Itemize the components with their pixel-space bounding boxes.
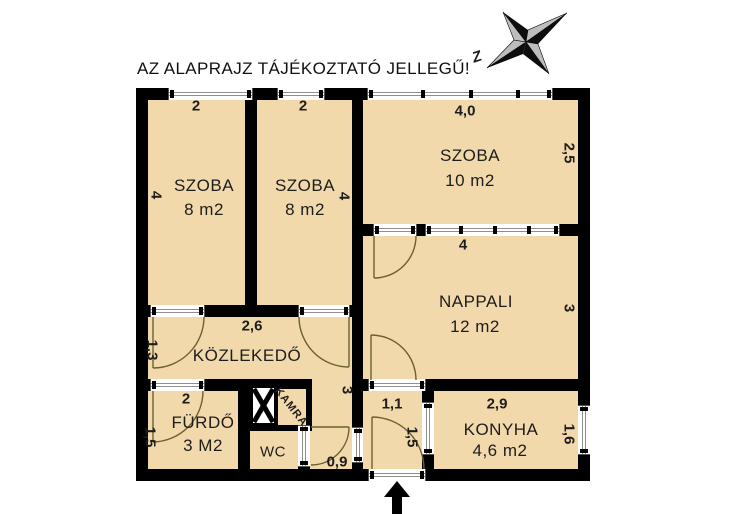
room-label-szoba1: SZOBA (174, 176, 234, 196)
room-label-szoba3: SZOBA (440, 146, 500, 166)
window-konyha (578, 405, 590, 455)
dim-nappali-right: 3 (561, 304, 578, 312)
door-opening-nappali (368, 379, 426, 391)
door-opening-furdo (150, 379, 205, 391)
door-opening-szoba2 (298, 305, 350, 317)
dim-szoba3-right: 2,5 (561, 143, 578, 164)
room-label-wc: WC (260, 444, 286, 461)
dim-nappali-top: 4 (459, 237, 467, 254)
wall-furdo-right (238, 379, 250, 469)
room-area-furdo: 3 M2 (183, 436, 223, 456)
window-szoba3 (367, 88, 553, 100)
room-area-konyha: 4,6 m2 (473, 441, 528, 461)
room-label-furdo: FÜRDŐ (172, 413, 235, 433)
wall-outer-bottom (136, 469, 590, 481)
wall-szoba1-szoba2 (245, 100, 257, 317)
room-label-nappali: NAPPALI (439, 292, 513, 312)
room-area-szoba3: 10 m2 (445, 171, 495, 191)
entrance-door-opening (368, 469, 426, 481)
opening-corridor-entry (352, 427, 363, 463)
dim-entry-width: 1,1 (382, 396, 403, 413)
window-mullion (527, 226, 531, 234)
window-mullion (493, 226, 497, 234)
room-area-nappali: 12 m2 (450, 317, 500, 337)
disclaimer-title: AZ ALAPRAJZ TÁJÉKOZTATÓ JELLEGŰ! (137, 59, 470, 79)
room-label-konyha: KONYHA (464, 420, 539, 440)
compass-north-label: Z (470, 47, 484, 66)
dim-hall-left: 1,3 (144, 340, 161, 361)
dim-hall-right: 3 (339, 386, 356, 394)
room-label-kozlekedo: KÖZLEKEDŐ (193, 346, 301, 366)
entrance-arrow-icon (384, 481, 410, 514)
window-szoba1 (168, 88, 253, 100)
dim-konyha-top: 2,9 (487, 396, 508, 413)
compass-icon (487, 12, 567, 74)
room-area-szoba2: 8 m2 (285, 200, 325, 220)
dim-furdo-top: 2 (182, 391, 190, 408)
wall-outer-left (136, 88, 148, 481)
window-mullion (469, 90, 473, 98)
window-mullion (459, 226, 463, 234)
dim-furdo-left: 1,5 (142, 427, 159, 448)
dim-hall-width: 2,6 (242, 318, 263, 335)
door-opening-szoba1 (150, 305, 205, 317)
door-opening-wc (298, 425, 310, 467)
door-opening-szoba3 (373, 224, 417, 236)
opening-entry-konyha (422, 402, 434, 455)
room-area-szoba1: 8 m2 (184, 200, 224, 220)
dim-szoba2-top: 2 (299, 98, 307, 115)
dim-szoba3-top: 4,0 (455, 103, 476, 120)
dim-entry-depth: 1,5 (404, 427, 421, 448)
dim-szoba1-left: 4 (148, 191, 165, 199)
wall-center-spine (352, 100, 363, 469)
glazing-szoba3-nappali (425, 224, 560, 236)
floor-plan-page: AZ ALAPRAJZ TÁJÉKOZTATÓ JELLEGŰ! (0, 0, 730, 514)
dim-szoba1-top: 2 (192, 98, 200, 115)
room-label-szoba2: SZOBA (275, 176, 335, 196)
dim-konyha-right: 1,6 (561, 424, 578, 445)
dim-corridor-width: 0,9 (327, 454, 348, 471)
window-mullion (421, 90, 425, 98)
window-mullion (516, 90, 520, 98)
vent-shaft-box (253, 388, 274, 423)
dim-szoba2-right: 4 (336, 192, 353, 200)
